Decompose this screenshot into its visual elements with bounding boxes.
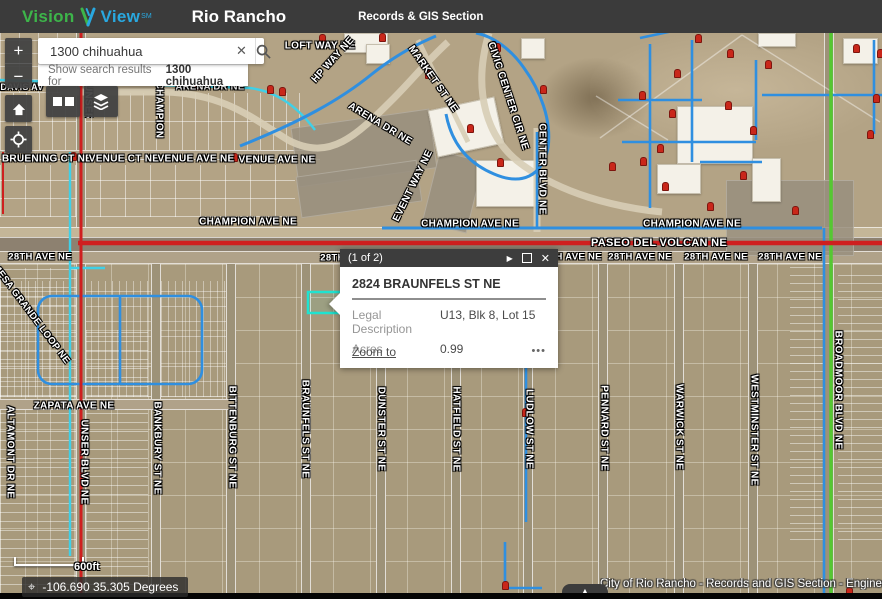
- divider: [352, 298, 546, 300]
- logo-v-icon: [78, 6, 98, 28]
- logo-view-text: View: [101, 7, 141, 27]
- popup-header[interactable]: (1 of 2) ▶ ✕: [340, 249, 558, 267]
- search-box: ✕: [38, 38, 264, 64]
- layers-button[interactable]: [84, 86, 118, 117]
- suggestion-term: 1300 chihuahua: [166, 64, 248, 88]
- scale-label: 600ft: [74, 561, 100, 573]
- feature-popup: (1 of 2) ▶ ✕ 2824 BRAUNFELS ST NE Legal …: [340, 249, 558, 368]
- logo-sm-mark: SM: [141, 13, 152, 20]
- layers-icon: [92, 93, 110, 110]
- zoom-in-button[interactable]: +: [5, 38, 32, 64]
- popup-body: 2824 BRAUNFELS ST NE Legal Description U…: [340, 267, 558, 368]
- popup-pointer: [329, 293, 340, 315]
- search-button[interactable]: [255, 38, 271, 64]
- field-row: Legal Description U13, Blk 8, Lot 15: [352, 308, 546, 336]
- page-title: Rio Rancho: [192, 7, 286, 27]
- attribution-text: City of Rio Rancho - Records and GIS Sec…: [600, 578, 882, 590]
- more-options-icon[interactable]: •••: [531, 345, 546, 359]
- locate-icon: [10, 131, 27, 148]
- next-feature-icon[interactable]: ▶: [507, 254, 513, 263]
- search-suggestion[interactable]: Show search results for 1300 chihuahua: [38, 64, 248, 86]
- zoom-to-link[interactable]: Zoom to: [352, 345, 396, 359]
- close-icon[interactable]: ✕: [541, 252, 550, 265]
- clear-search-icon[interactable]: ✕: [228, 43, 255, 59]
- search-input[interactable]: [48, 43, 228, 60]
- field-label: Legal Description: [352, 308, 440, 336]
- search-icon: [256, 44, 271, 59]
- coordinates-widget: ⌖ -106.690 35.305 Degrees: [22, 577, 188, 597]
- suggestion-prefix: Show search results for: [48, 64, 163, 88]
- crosshair-icon[interactable]: ⌖: [28, 579, 35, 595]
- popup-title: 2824 BRAUNFELS ST NE: [352, 267, 546, 291]
- field-value: U13, Blk 8, Lot 15: [440, 308, 535, 336]
- coordinates-value: -106.690 35.305 Degrees: [42, 580, 178, 594]
- logo-vision-text: Vision: [22, 7, 75, 27]
- popup-pagination: (1 of 2): [348, 252, 383, 264]
- locate-button[interactable]: [5, 126, 32, 153]
- basemap-squares-icon: [53, 97, 74, 106]
- zoom-controls: + −: [5, 38, 32, 88]
- app-header: Vision View SM Rio Rancho Records & GIS …: [0, 0, 882, 33]
- zoom-out-button[interactable]: −: [5, 64, 32, 88]
- maximize-icon[interactable]: [522, 253, 532, 263]
- home-icon: [11, 102, 27, 116]
- app-logo: Vision View SM: [22, 6, 152, 28]
- section-title: Records & GIS Section: [358, 11, 483, 23]
- home-button[interactable]: [5, 95, 32, 122]
- map-canvas[interactable]: DAVIS AVLOFT WAY NEARENA DR NEBRUENING C…: [0, 33, 882, 599]
- basemap-button[interactable]: [46, 86, 80, 117]
